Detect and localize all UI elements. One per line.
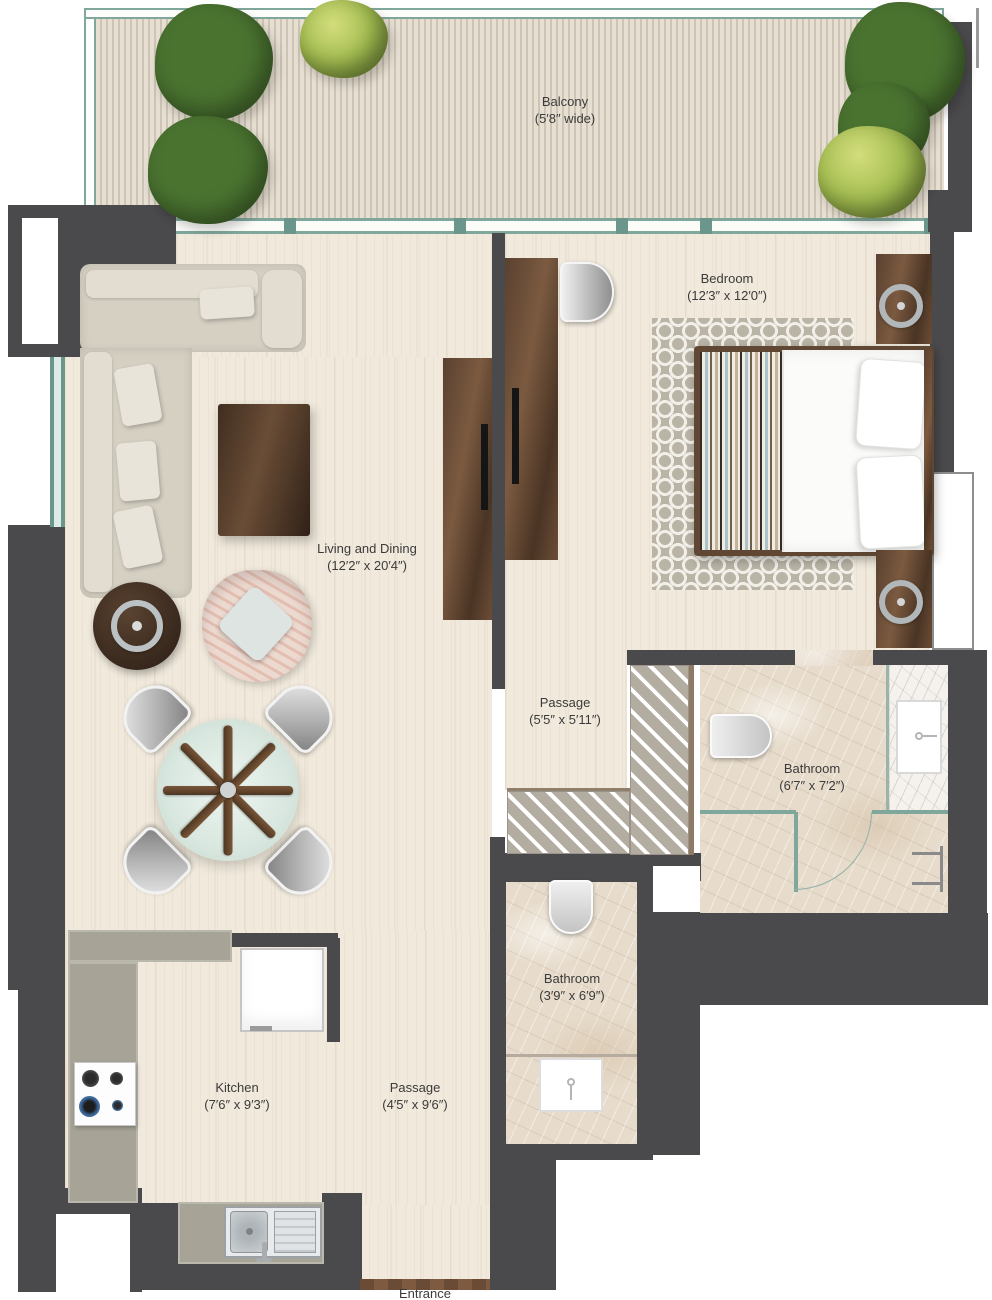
wall-right-of-sink xyxy=(322,1193,362,1290)
wall-below-bathroom-main xyxy=(690,913,988,1005)
stove-burner xyxy=(79,1096,100,1117)
refrigerator-handle xyxy=(250,1026,272,1031)
nightstand-lamp-hub xyxy=(897,598,905,606)
room-name: Kitchen xyxy=(157,1080,317,1097)
room-label-bathroom-small: Bathroom (3′9″ x 6′9″) xyxy=(502,971,642,1005)
wardrobe-bottom xyxy=(507,788,630,854)
room-name: Passage xyxy=(335,1080,495,1097)
wall-entrance-right xyxy=(490,1156,556,1290)
sink-drain xyxy=(246,1228,253,1235)
dining-table-hub xyxy=(220,782,236,798)
wall-bathroom-main-right xyxy=(948,663,987,913)
toilet-small xyxy=(549,880,593,934)
sofa-backrest-side xyxy=(84,352,112,592)
wardrobe-right xyxy=(630,665,694,855)
balcony-railing-left xyxy=(84,8,96,220)
towel-rail-post xyxy=(940,846,943,892)
shower-small-head xyxy=(567,1078,575,1086)
window-mullion xyxy=(616,218,628,234)
coffee-table xyxy=(218,404,310,536)
sink-faucet-handle xyxy=(256,1258,272,1262)
niche-white xyxy=(652,866,700,912)
stove-burner xyxy=(112,1100,123,1111)
toilet-main xyxy=(710,714,772,758)
window-mullion xyxy=(700,218,712,234)
plant-left-mid xyxy=(148,116,268,224)
tv-bedroom xyxy=(512,388,519,484)
room-dims: (12′3″ x 12′0″) xyxy=(627,288,827,305)
refrigerator xyxy=(240,948,324,1032)
room-label-balcony: Balcony (5′8″ wide) xyxy=(465,94,665,128)
plant-top-left-large xyxy=(155,4,273,120)
room-dims: (5′5″ x 5′11″) xyxy=(495,712,635,729)
shower-main-head xyxy=(915,732,923,740)
room-dims: (5′8″ wide) xyxy=(465,111,665,128)
room-label-bedroom: Bedroom (12′3″ x 12′0″) xyxy=(627,271,827,305)
room-label-kitchen: Kitchen (7′6″ x 9′3″) xyxy=(157,1080,317,1114)
entrance-floor xyxy=(360,1205,490,1282)
desk-chair xyxy=(560,262,614,322)
window-mullion xyxy=(284,218,296,234)
room-name: Bathroom xyxy=(502,971,642,988)
wall-bathroom-small-left xyxy=(490,866,506,1160)
bed-throw-blanket xyxy=(700,352,784,550)
room-label-entrance: Entrance xyxy=(360,1286,490,1300)
bed-pillow xyxy=(856,454,927,549)
balcony-railing-right xyxy=(976,8,979,68)
stove-burner xyxy=(82,1070,99,1087)
bed-headboard xyxy=(924,350,932,552)
room-name: Bedroom xyxy=(627,271,827,288)
wall-bathroom-small-right xyxy=(637,866,653,1160)
wall-kitchen-nook-right xyxy=(327,938,340,1042)
sofa-pillow xyxy=(116,440,161,501)
shaft-bottom-left xyxy=(56,1214,130,1292)
room-name: Bathroom xyxy=(732,761,892,778)
nightstand-lamp-hub xyxy=(897,302,905,310)
side-table-hub xyxy=(132,621,142,631)
room-label-living: Living and Dining (12′2″ x 20′4″) xyxy=(267,541,467,575)
room-label-passage-upper: Passage (5′5″ x 5′11″) xyxy=(495,695,635,729)
shaft-top-left xyxy=(22,218,58,344)
window-mullion xyxy=(454,218,466,234)
bed-pillow xyxy=(855,358,927,450)
kitchen-counter-top xyxy=(68,930,232,962)
plant-right-light xyxy=(818,126,926,218)
shower-small-arm xyxy=(570,1086,572,1100)
floor-plan: Balcony (5′8″ wide) Bedroom (12′3″ x 12′… xyxy=(0,0,992,1300)
room-name: Balcony xyxy=(465,94,665,111)
stove xyxy=(74,1062,136,1126)
bathroom-small-divider xyxy=(506,1054,637,1057)
room-dims: (4′5″ x 9′6″) xyxy=(335,1097,495,1114)
room-name: Living and Dining xyxy=(267,541,467,558)
shower-main-arm xyxy=(923,735,937,737)
window-bedroom-right xyxy=(932,472,974,650)
sofa-pillow xyxy=(199,286,255,320)
wall-divider-living-bedroom xyxy=(492,233,505,689)
bathroom-main-partition xyxy=(872,810,948,814)
wall-left-upper xyxy=(8,525,65,990)
towel-rail xyxy=(912,852,942,855)
wall-kitchen-nook-top xyxy=(232,933,338,947)
window-left xyxy=(50,357,65,527)
room-dims: (6′7″ x 7′2″) xyxy=(732,778,892,795)
towel-rail xyxy=(912,882,942,885)
stove-burner xyxy=(110,1072,123,1085)
bathroom-main-door-opening xyxy=(795,650,873,665)
sofa-arm-right xyxy=(262,270,302,348)
plant-top-left-small xyxy=(300,0,388,78)
room-dims: (12′2″ x 20′4″) xyxy=(267,558,467,575)
room-dims: (7′6″ x 9′3″) xyxy=(157,1097,317,1114)
tv-living xyxy=(481,424,488,510)
room-label-passage-lower: Passage (4′5″ x 9′6″) xyxy=(335,1080,495,1114)
room-name: Passage xyxy=(495,695,635,712)
room-label-bathroom-main: Bathroom (6′7″ x 7′2″) xyxy=(732,761,892,795)
bathroom-main-partition xyxy=(700,810,796,814)
room-dims: (3′9″ x 6′9″) xyxy=(502,988,642,1005)
sink-drainboard xyxy=(274,1211,316,1253)
